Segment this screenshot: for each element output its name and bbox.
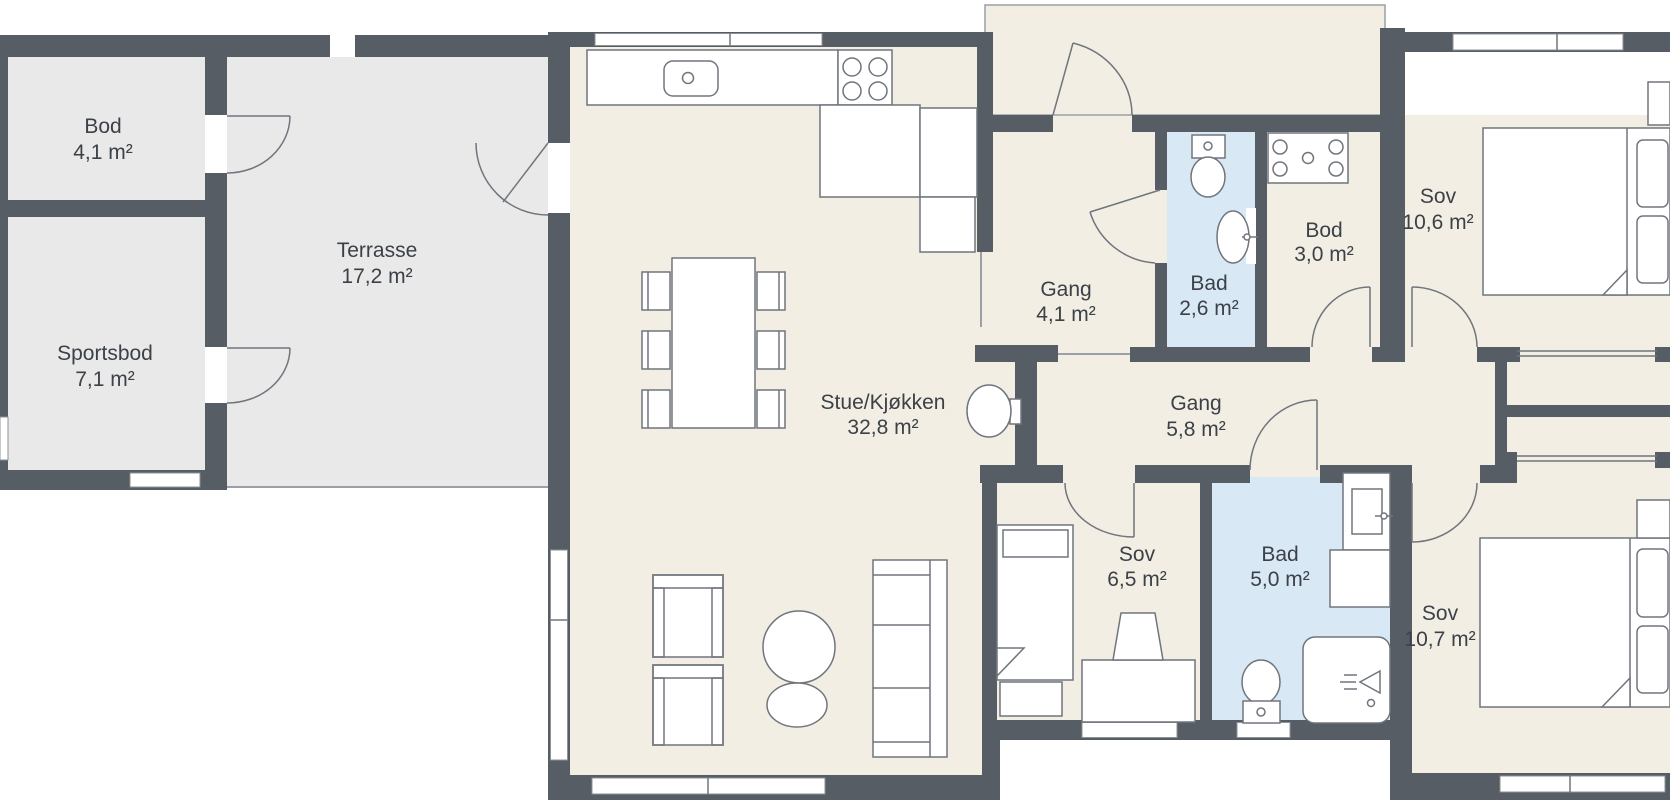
room-area-sportsbod: 7,1 m² <box>75 368 135 391</box>
room-area-bod-indre: 3,0 m² <box>1294 243 1354 266</box>
vanity-sink-icon <box>1343 473 1393 550</box>
room-label-gang-entre: Gang <box>1040 278 1091 301</box>
room-label-sov-sor: Sov <box>1422 602 1459 625</box>
pillow-icon <box>1637 140 1668 207</box>
coffee-table-icon <box>763 611 835 683</box>
room-label-bod-indre: Bod <box>1305 219 1342 242</box>
room-label-stue: Stue/Kjøkken <box>821 391 946 414</box>
room-area-bad-stor: 5,0 m² <box>1250 568 1310 591</box>
armchair-icon <box>653 665 723 745</box>
room-area-terrasse: 17,2 m² <box>341 265 412 288</box>
window-kitchen <box>595 34 822 46</box>
kitchen-cabinet <box>820 105 920 197</box>
desk-icon <box>1082 660 1195 722</box>
room-area-bad-liten: 2,6 m² <box>1179 297 1239 320</box>
toilet-icon <box>1242 660 1280 723</box>
room-label-gang-indre: Gang <box>1170 392 1221 415</box>
washbasin-icon <box>1217 208 1258 264</box>
desk-chair-icon <box>1113 613 1163 660</box>
dresser-icon <box>1000 682 1062 716</box>
nightstand-icon <box>1637 500 1670 538</box>
kitchen-sink-icon <box>664 61 718 96</box>
dining-table <box>672 258 755 428</box>
room-label-sov-liten: Sov <box>1119 543 1156 566</box>
pillow-icon <box>1003 530 1068 557</box>
shower-icon <box>1303 637 1390 723</box>
room-area-sov-liten: 6,5 m² <box>1107 568 1167 591</box>
sofa-icon <box>873 560 947 757</box>
room-label-bod-annex: Bod <box>84 115 121 138</box>
toilet-icon <box>1191 135 1225 197</box>
window-sov-liten <box>1082 723 1177 738</box>
entrance-porch-floor <box>985 5 1385 115</box>
room-area-gang-indre: 5,8 m² <box>1166 418 1226 441</box>
room-area-sov-sor: 10,7 m² <box>1404 628 1475 651</box>
room-label-terrasse: Terrasse <box>337 239 418 262</box>
window-bad-stor <box>1237 723 1290 738</box>
outside-notch <box>997 740 1390 800</box>
bedroom-north <box>1483 82 1670 295</box>
floor-plan-canvas: Bod 4,1 m² Sportsbod 7,1 m² Terrasse 17,… <box>0 0 1670 800</box>
floor-plan: Bod 4,1 m² Sportsbod 7,1 m² Terrasse 17,… <box>0 0 1670 800</box>
room-label-bad-stor: Bad <box>1261 543 1298 566</box>
window-sov-stor <box>1453 34 1623 50</box>
window-sportsbod-south <box>130 473 200 487</box>
room-area-bod-annex: 4,1 m² <box>73 141 133 164</box>
window-stue-west <box>551 550 568 760</box>
laundry-unit-icon <box>1268 133 1348 183</box>
window-sov-sor <box>1500 776 1665 792</box>
room-area-stue: 32,8 m² <box>847 416 918 439</box>
coffee-table-icon <box>767 683 827 727</box>
room-area-sov-stor: 10,6 m² <box>1402 211 1473 234</box>
stove-icon <box>838 50 892 105</box>
room-label-sportsbod: Sportsbod <box>57 342 153 365</box>
dining-area <box>642 258 785 428</box>
kitchen-cabinet <box>920 197 975 252</box>
nightstand-icon <box>1648 82 1670 125</box>
pillow-icon <box>1637 626 1668 693</box>
window-sportsbod-west <box>0 417 8 460</box>
room-label-sov-stor: Sov <box>1420 185 1457 208</box>
pillow-icon <box>1637 549 1668 617</box>
pillow-icon <box>1637 216 1668 283</box>
window-stue-south <box>592 778 825 794</box>
armchair-icon <box>653 575 723 657</box>
room-area-gang-entre: 4,1 m² <box>1036 303 1096 326</box>
bathroom-counter <box>1330 550 1390 607</box>
room-label-bad-liten: Bad <box>1190 272 1227 295</box>
kitchen-cabinet <box>920 108 977 197</box>
